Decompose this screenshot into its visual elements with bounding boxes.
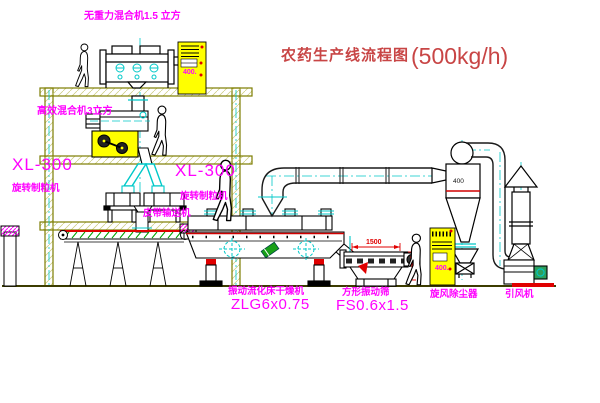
cyclone-size-text: 400 <box>453 179 464 186</box>
person-figure-roof <box>76 44 89 87</box>
label-belt-conveyor: 皮带输送机 <box>143 209 191 219</box>
gravity-free-mixer <box>100 46 186 114</box>
label-sieve-model: FS0.6x1.5 <box>336 298 409 314</box>
bucket-elevator <box>1 226 19 286</box>
fluid-bed-dryer <box>186 209 356 286</box>
exhaust-duct <box>258 167 432 216</box>
dimension-1500: 1500 <box>366 239 382 246</box>
exhaust-stack <box>505 166 537 260</box>
y-splitter-chute <box>124 164 162 186</box>
label-granulator-right-name: 旋转制粒机 <box>180 192 228 202</box>
high-efficiency-mixer <box>86 111 152 164</box>
label-high-efficiency-mixer: 高效混合机3立方 <box>37 107 113 118</box>
label-granulator-left-name: 旋转制粒机 <box>12 184 60 194</box>
conveyor-legs <box>70 242 166 286</box>
belt-conveyor <box>59 231 190 287</box>
cabinet-top-display-text: 400. <box>183 69 197 76</box>
induced-draft-fan <box>504 260 554 287</box>
cabinet-right-display-text: 400. <box>435 265 449 272</box>
label-dryer-model: ZLG6x0.75 <box>231 297 310 313</box>
page-title: 农药生产线流程图 (500kg/h) <box>281 44 508 68</box>
label-granulator-left-model: XL-300 <box>12 156 73 174</box>
person-figure-floor2 <box>152 106 167 155</box>
page-title-zh: 农药生产线流程图 <box>281 48 409 64</box>
dryer-legs <box>200 259 330 286</box>
label-cyclone: 旋风除尘器 <box>430 290 478 300</box>
fan-base <box>512 283 554 287</box>
diagram-canvas: 农药生产线流程图 (500kg/h) 无重力混合机1.5 立方 高效混合机3立方… <box>0 0 600 403</box>
roof-beam <box>40 88 252 96</box>
control-cabinet-top <box>178 42 206 94</box>
label-granulator-right-model: XL-300 <box>175 162 236 180</box>
fan-motor <box>534 266 547 279</box>
label-gravity-free-mixer: 无重力混合机1.5 立方 <box>84 12 181 23</box>
label-fan: 引风机 <box>505 290 534 300</box>
page-title-capacity: (500kg/h) <box>411 44 508 68</box>
control-cabinet-right <box>430 228 455 285</box>
